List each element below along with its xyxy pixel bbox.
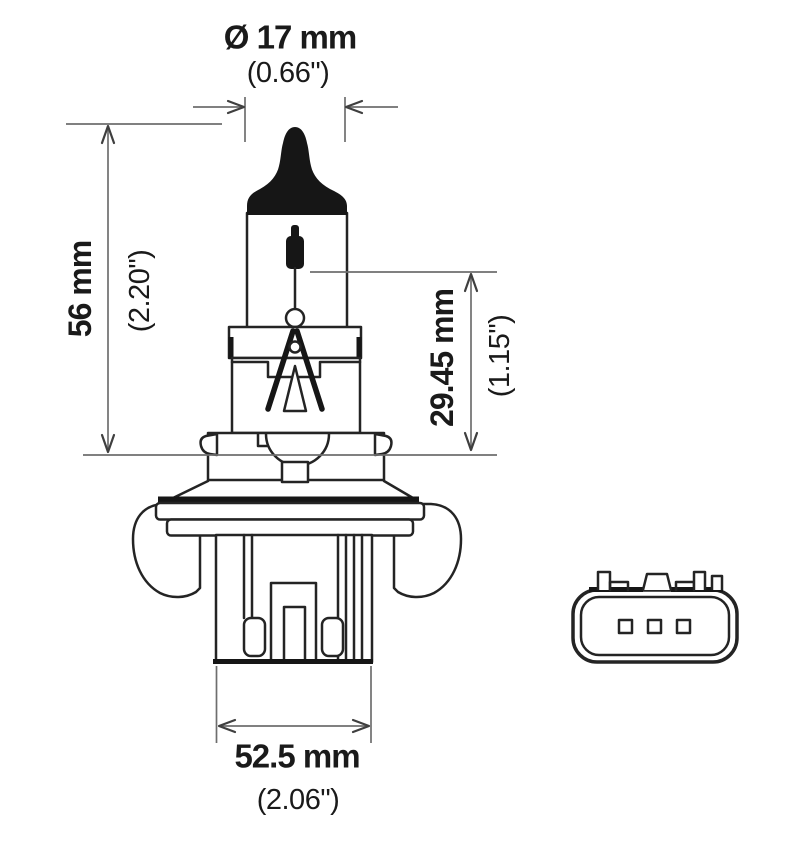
connector-pin-3 (677, 620, 690, 633)
support-pivot-hole (290, 342, 301, 353)
collar-tab-right (375, 434, 391, 455)
connector-face-view (573, 572, 737, 662)
dia-label-mm: Ø 17 mm (224, 19, 356, 56)
collar-skirt-right (384, 481, 413, 498)
connector-tab-1 (598, 572, 610, 590)
housing-foot-right (322, 618, 343, 656)
len-label-inch: (2.20") (124, 250, 156, 333)
flange-plate-lower (167, 520, 413, 536)
wid-label-mm: 52.5 mm (234, 738, 359, 775)
wid-label-inch: (2.06") (257, 784, 340, 816)
dimension-diameter: Ø 17 mm (0.66") (193, 19, 398, 143)
lcl-label-inch: (1.15") (484, 315, 516, 398)
diagram-canvas: Ø 17 mm (0.66") 56 mm (2.20") 29.45 mm (… (0, 0, 800, 843)
lead-loop (286, 309, 304, 327)
connector-pin-1 (619, 620, 632, 633)
filament-assembly (286, 225, 304, 327)
connector-tab-center (643, 574, 671, 590)
collar-tab-left (201, 434, 217, 455)
technical-drawing: Ø 17 mm (0.66") 56 mm (2.20") 29.45 mm (… (0, 0, 800, 843)
connector-pin-2 (648, 620, 661, 633)
connector-tab-2 (694, 572, 705, 590)
collar-key-tab (282, 462, 308, 482)
dia-label-inch: (0.66") (247, 57, 330, 89)
flange-plate-upper (156, 503, 424, 520)
connector-housing (213, 535, 373, 662)
black-tip (247, 127, 347, 215)
collar-skirt-left (173, 481, 208, 498)
lcl-label-mm: 29.45 mm (424, 289, 460, 427)
base-collar (173, 433, 413, 498)
filament-coil (286, 236, 304, 269)
housing-foot-left (244, 618, 265, 656)
connector-tab-3 (712, 576, 722, 590)
o-ring-flange (156, 497, 424, 536)
bulb-side-view (133, 127, 461, 662)
housing-center-slot (284, 607, 305, 662)
len-label-mm: 56 mm (62, 241, 98, 337)
dimension-base-width: 52.5 mm (2.06") (217, 666, 372, 816)
